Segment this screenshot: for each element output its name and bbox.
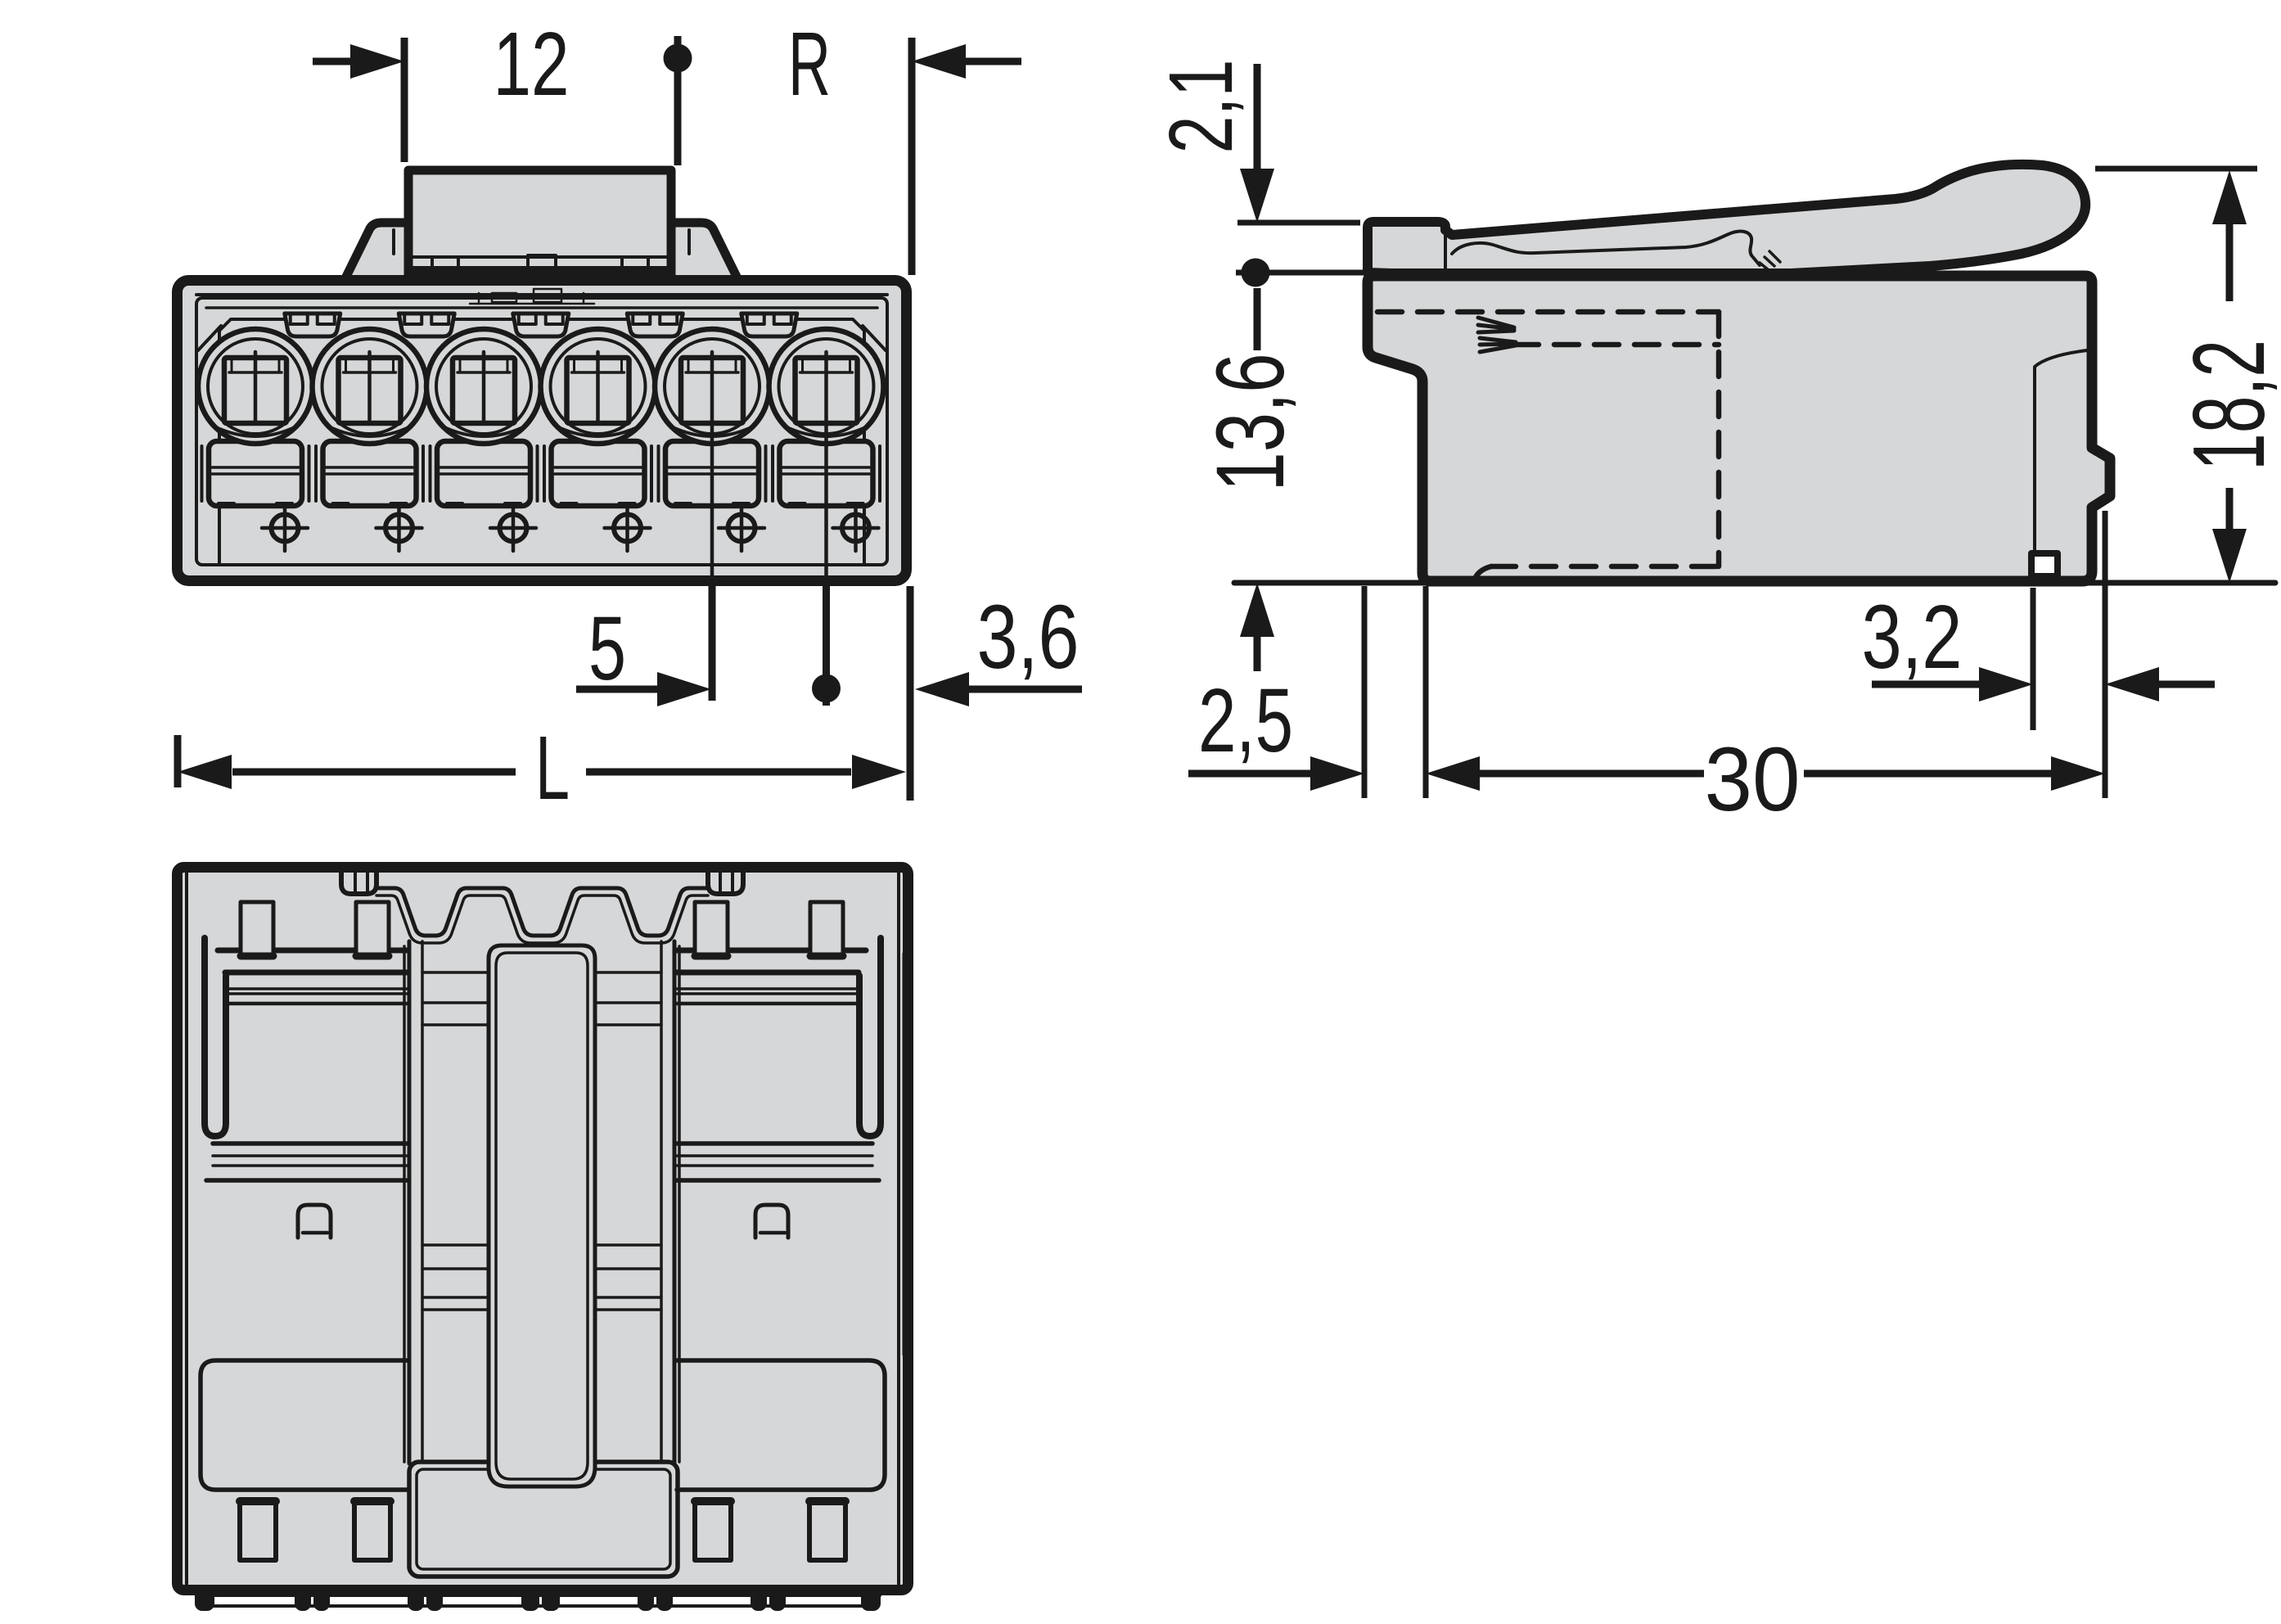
svg-text:12: 12	[494, 14, 570, 115]
svg-text:18,2: 18,2	[2173, 340, 2281, 471]
svg-text:30: 30	[1705, 729, 1801, 830]
svg-text:3,2: 3,2	[1862, 587, 1963, 688]
svg-text:2,1: 2,1	[1151, 60, 1251, 154]
svg-text:13,6: 13,6	[1197, 354, 1305, 492]
svg-text:3,6: 3,6	[977, 587, 1080, 688]
svg-text:5: 5	[588, 598, 626, 699]
svg-text:L: L	[535, 718, 570, 819]
svg-text:R: R	[788, 14, 831, 115]
svg-text:2,5: 2,5	[1198, 670, 1293, 771]
